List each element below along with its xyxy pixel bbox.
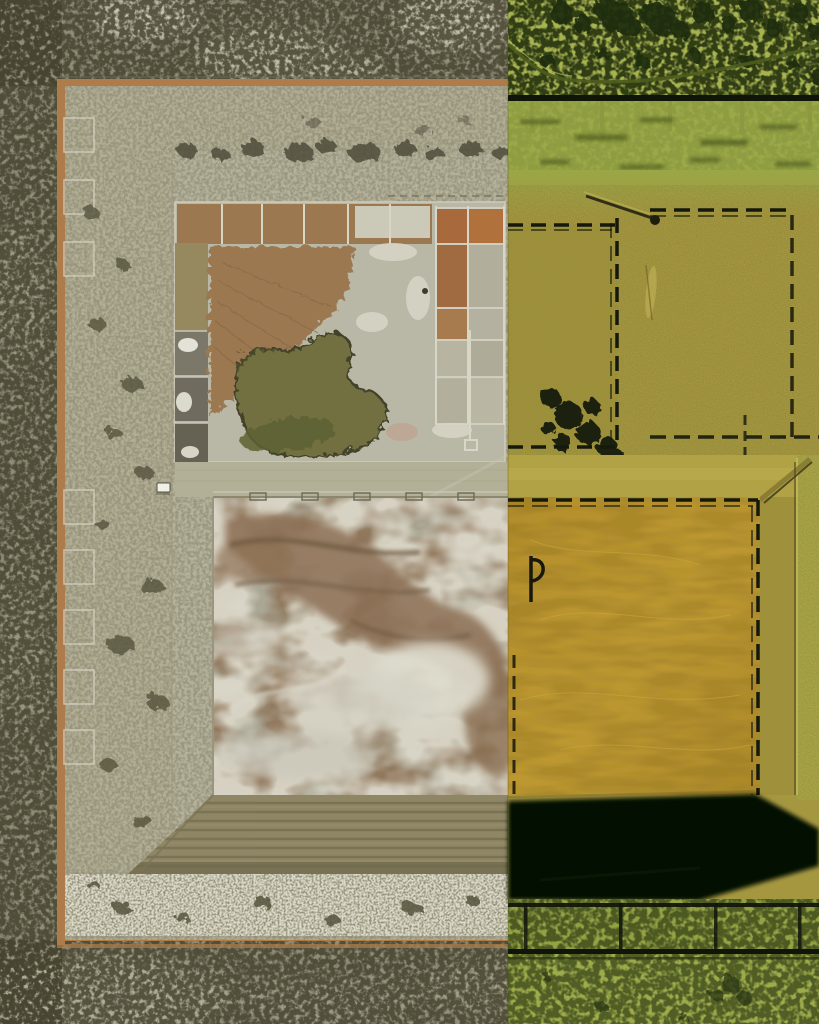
lidar-outer-berm-right (760, 455, 819, 800)
lidar-south-scrub (508, 899, 819, 1024)
lower-pond-cell (213, 492, 525, 795)
lidar-overlay-panel (507, 0, 819, 1024)
bottom-berm-rubble (65, 874, 508, 936)
dark-dot (422, 288, 428, 294)
aerial-composite-image (0, 0, 819, 1024)
aerial-photo-scene (0, 0, 819, 1024)
upper-pond-cell (175, 196, 505, 462)
upper-cell-left-column (175, 243, 208, 462)
orange-subcell-grid (436, 206, 504, 450)
white-vehicle (156, 483, 170, 495)
scrub-texture-left (0, 0, 62, 1024)
lidar-upper-cells (508, 185, 819, 465)
lidar-mustard-cell (508, 497, 760, 795)
overlay-seam (507, 0, 509, 1024)
pink-smudge (386, 423, 418, 441)
